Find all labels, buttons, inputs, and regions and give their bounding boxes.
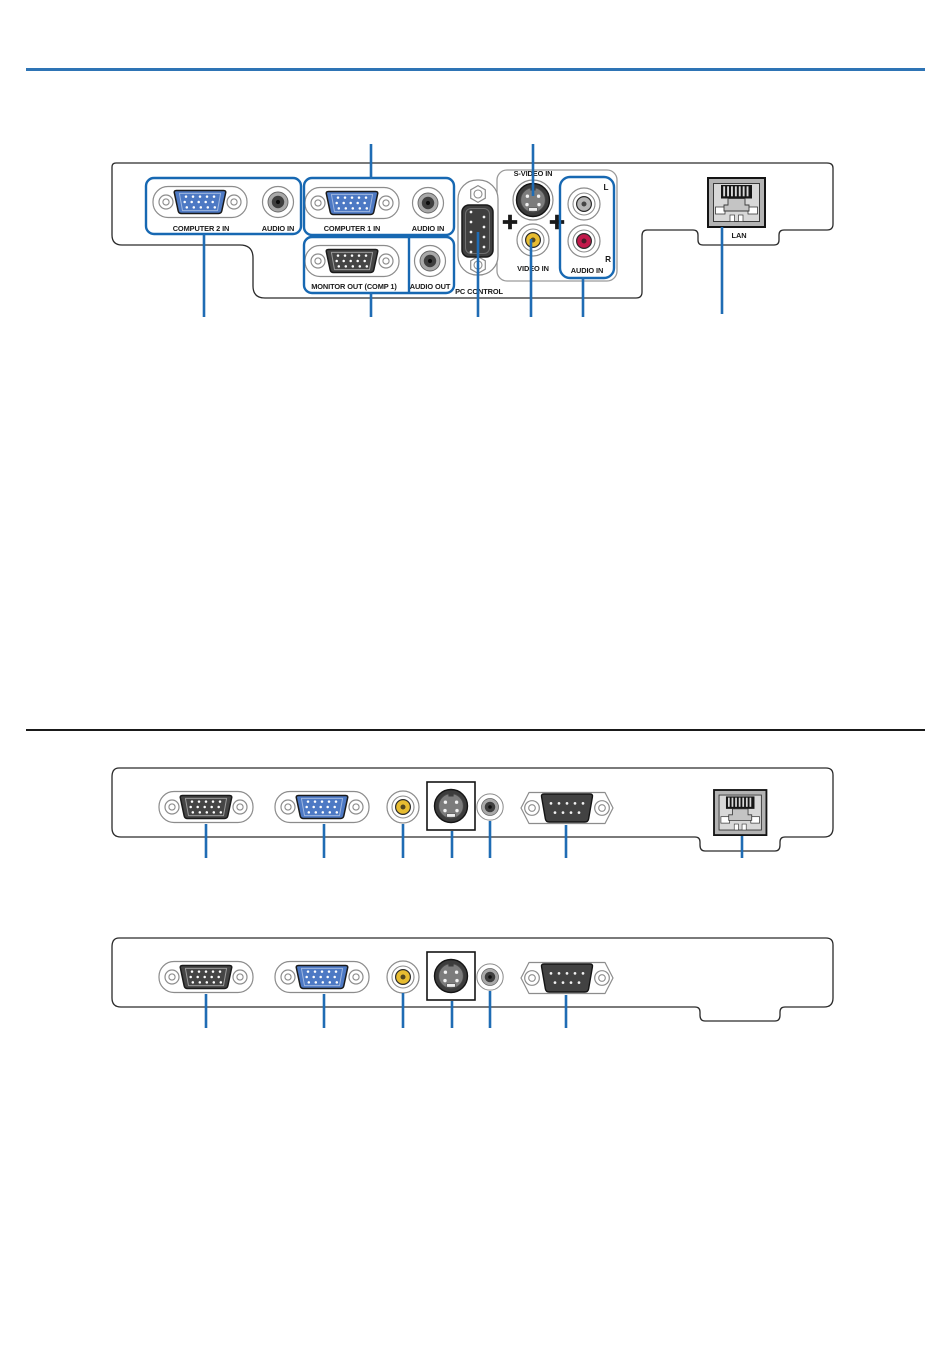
monitor-out-label: MONITOR OUT (COMP 1) (311, 282, 397, 291)
header-rule (26, 68, 925, 71)
terminal-panel-plain-with-lan-diagram (0, 755, 950, 863)
lan-port-icon (708, 178, 765, 227)
audio-right-label: R (605, 255, 611, 264)
computer2-audio-label: AUDIO IN (262, 224, 294, 233)
audio-out-jack-icon (415, 246, 446, 277)
computer-vga-connector-icon (275, 792, 369, 823)
monitor-out-vga-connector-icon (159, 962, 253, 993)
screw-icon (471, 186, 486, 203)
computer2-label: COMPUTER 2 IN (173, 224, 230, 233)
computer-vga-connector-icon (275, 962, 369, 993)
audio-jack-icon (477, 794, 503, 820)
lan-port-icon (714, 790, 766, 835)
video-in-label: VIDEO IN (517, 264, 549, 273)
section-divider-rule (26, 729, 925, 731)
audio-lr-label: AUDIO IN (571, 266, 603, 275)
computer1-vga-connector-icon (305, 188, 399, 219)
monitor-out-vga-connector-icon (305, 246, 399, 277)
pc-control-serial-connector-icon (521, 793, 613, 824)
computer2-audio-jack-icon (263, 187, 294, 218)
s-video-connector-icon (435, 790, 468, 823)
manual-page: { "page": { "background": "#ffffff", "ac… (0, 0, 950, 1367)
computer2-vga-connector-icon (153, 187, 247, 218)
computer1-audio-label: AUDIO IN (412, 224, 444, 233)
audio-jack-icon (477, 964, 503, 990)
video-in-rca-icon (387, 791, 419, 823)
pc-control-serial-connector-icon (521, 963, 613, 994)
terminal-panel-plain-no-lan-diagram (0, 925, 950, 1033)
audio-right-rca-icon (568, 225, 600, 257)
lan-label: LAN (732, 231, 747, 240)
computer1-label: COMPUTER 1 IN (324, 224, 381, 233)
terminal-panel-labeled-diagram: COMPUTER 2 IN AUDIO IN COMPUTER 1 IN AUD… (0, 138, 950, 322)
s-video-connector-icon (435, 960, 468, 993)
video-in-rca-icon (387, 961, 419, 993)
audio-out-label: AUDIO OUT (410, 282, 451, 291)
video-in-rca-icon (517, 224, 549, 256)
audio-left-rca-icon (568, 188, 600, 220)
monitor-out-vga-connector-icon (159, 792, 253, 823)
audio-left-label: L (604, 183, 609, 192)
computer1-audio-jack-icon (413, 188, 444, 219)
